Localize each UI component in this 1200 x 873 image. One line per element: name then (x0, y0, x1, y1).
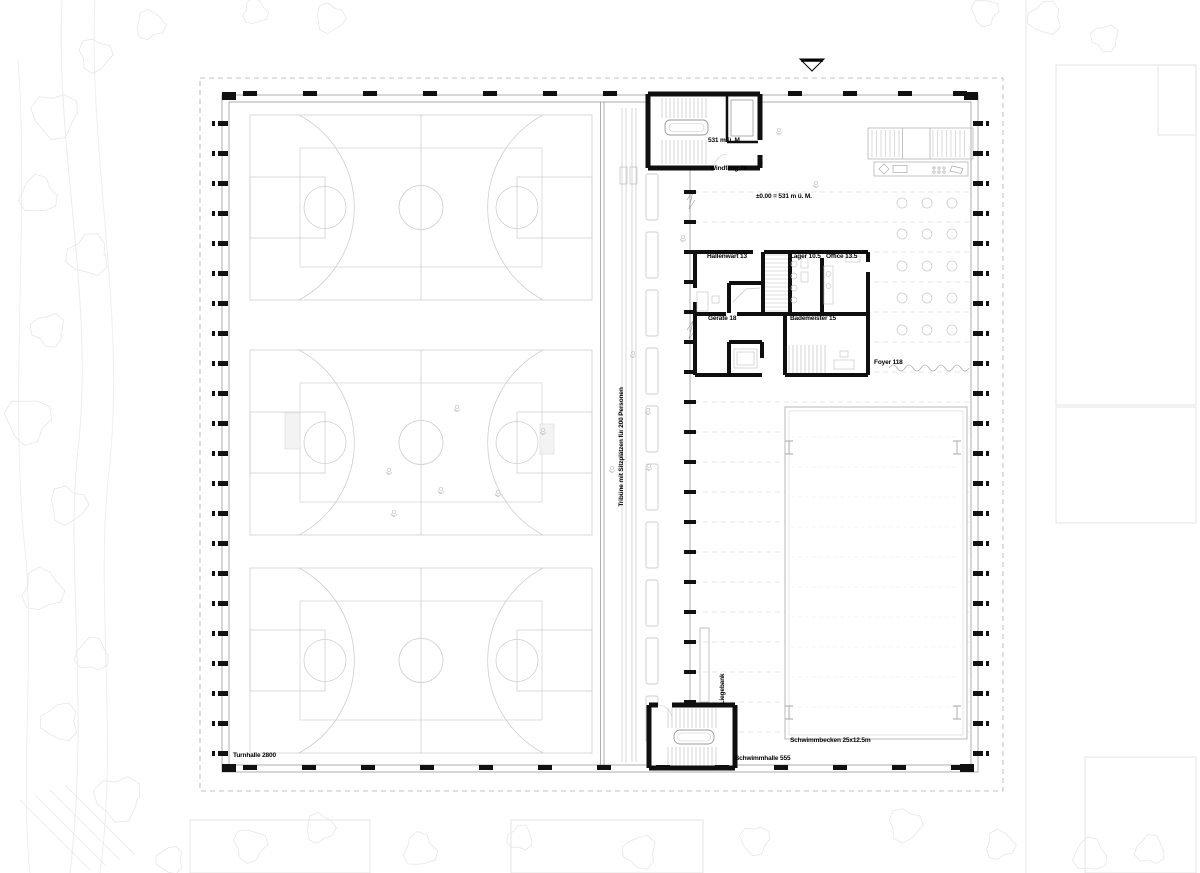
label-geraete: Geräte 18 (708, 316, 736, 323)
floor-plan-canvas: Turnhalle 2800 Tribüne mit Sitzplätzen f… (0, 0, 1200, 873)
elevator (665, 120, 708, 135)
label-schwimmhalle: Schwimmhalle 555 (735, 756, 790, 763)
label-turnhalle: Turnhalle 2800 (233, 753, 276, 760)
label-tribuene: Tribüne mit Sitzplätzen für 200 Personen (619, 387, 626, 506)
label-bademeister: Bademeister 15 (790, 316, 836, 323)
stair-core-top (646, 92, 762, 170)
label-hallenwart: Hallenwart 13 (707, 254, 747, 261)
entrance-marker (800, 59, 824, 71)
foyer-circles (897, 198, 957, 335)
swimming-hall (700, 128, 973, 739)
label-office: Office 13.5 (826, 254, 857, 261)
context-trees (4, 0, 1164, 873)
floor-plan-drawing (0, 0, 1200, 873)
label-windfang: Windfang 78 (710, 166, 747, 173)
stair-core-bottom (649, 705, 735, 768)
counter-items (879, 164, 963, 174)
swimming-pool (785, 407, 967, 739)
liegebank-bench (700, 628, 709, 702)
label-lager: Lager 10.5 (790, 254, 821, 261)
label-schwimmbecken: Schwimmbecken 25x12.5m (790, 738, 871, 745)
label-foyer: Foyer 118 (874, 360, 903, 367)
label-level-entry: 531 m ü. M. (708, 138, 741, 145)
elevator (674, 730, 714, 744)
label-level-main: ±0.00 = 531 m ü. M. (756, 194, 812, 201)
room-cluster (693, 250, 870, 377)
cloakroom (868, 128, 973, 176)
ground-hatch (20, 785, 135, 870)
label-liegebank: Liegebank (720, 674, 727, 705)
